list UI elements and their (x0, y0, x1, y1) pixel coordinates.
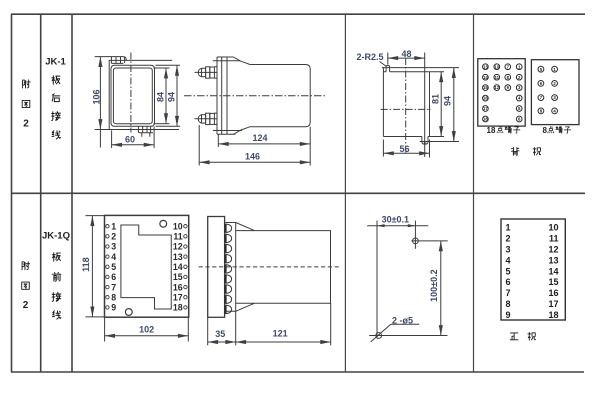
svg-text:7: 7 (111, 282, 116, 292)
svg-text:8: 8 (506, 299, 511, 309)
svg-text:12: 12 (548, 244, 558, 254)
svg-text:16: 16 (173, 282, 183, 292)
svg-text:124: 124 (252, 133, 267, 143)
svg-text:6: 6 (506, 277, 511, 287)
svg-text:2: 2 (506, 233, 511, 243)
svg-text:4: 4 (111, 252, 116, 262)
svg-text:2: 2 (23, 119, 29, 130)
svg-text:146: 146 (245, 152, 260, 162)
svg-text:9: 9 (506, 310, 511, 320)
svg-text:14: 14 (483, 75, 488, 80)
svg-text:3: 3 (506, 244, 511, 254)
svg-text:60: 60 (125, 135, 135, 145)
svg-text:5: 5 (506, 266, 511, 276)
svg-text:94: 94 (166, 92, 176, 102)
svg-text:2-R2.5: 2-R2.5 (357, 52, 384, 62)
svg-text:9: 9 (111, 303, 116, 313)
svg-text:10: 10 (494, 64, 499, 69)
svg-text:JK-1: JK-1 (45, 57, 66, 68)
svg-text:10: 10 (548, 223, 558, 233)
svg-text:16: 16 (548, 288, 558, 298)
svg-text:15: 15 (173, 272, 183, 282)
svg-text:2: 2 (111, 232, 116, 242)
svg-text:17: 17 (548, 299, 558, 309)
svg-text:48: 48 (401, 49, 411, 59)
svg-text:100±0.2: 100±0.2 (429, 269, 439, 301)
svg-text:13: 13 (548, 255, 558, 265)
svg-text:17: 17 (483, 106, 488, 111)
svg-text:118: 118 (81, 257, 91, 272)
svg-text:15: 15 (483, 85, 488, 90)
svg-text:102: 102 (139, 325, 154, 335)
svg-text:14: 14 (173, 262, 183, 272)
svg-text:4: 4 (506, 255, 511, 265)
svg-text:2: 2 (23, 300, 29, 311)
svg-text:84: 84 (155, 92, 165, 102)
svg-text:1: 1 (506, 223, 511, 233)
svg-text:13: 13 (483, 64, 488, 69)
svg-text:18: 18 (173, 303, 183, 313)
svg-text:12: 12 (173, 242, 183, 252)
svg-text:15: 15 (548, 277, 558, 287)
svg-text:35: 35 (215, 329, 225, 339)
svg-text:JK-1Q: JK-1Q (42, 231, 70, 242)
svg-text:121: 121 (273, 328, 288, 338)
svg-text:30±0.1: 30±0.1 (382, 215, 409, 225)
svg-text:18: 18 (483, 117, 488, 122)
svg-text:8: 8 (542, 126, 547, 135)
svg-text:3: 3 (111, 242, 116, 252)
svg-text:94: 94 (443, 96, 453, 106)
svg-text:17: 17 (173, 292, 183, 302)
svg-text:2 -ø5: 2 -ø5 (392, 315, 413, 325)
svg-text:12: 12 (494, 85, 499, 90)
svg-text:18: 18 (487, 126, 496, 135)
svg-text:81: 81 (431, 94, 441, 104)
svg-text:8: 8 (111, 292, 116, 302)
svg-text:56: 56 (399, 144, 409, 154)
svg-text:11: 11 (549, 233, 559, 243)
svg-text:11: 11 (495, 75, 500, 80)
svg-text:13: 13 (173, 252, 183, 262)
svg-text:18: 18 (548, 310, 558, 320)
svg-text:11: 11 (173, 232, 182, 242)
svg-text:7: 7 (506, 288, 511, 298)
svg-text:6: 6 (111, 272, 116, 282)
svg-text:14: 14 (548, 266, 558, 276)
svg-text:10: 10 (173, 221, 183, 231)
svg-text:16: 16 (483, 96, 488, 101)
svg-text:106: 106 (92, 89, 102, 104)
svg-text:1: 1 (111, 221, 116, 231)
svg-text:5: 5 (111, 262, 116, 272)
